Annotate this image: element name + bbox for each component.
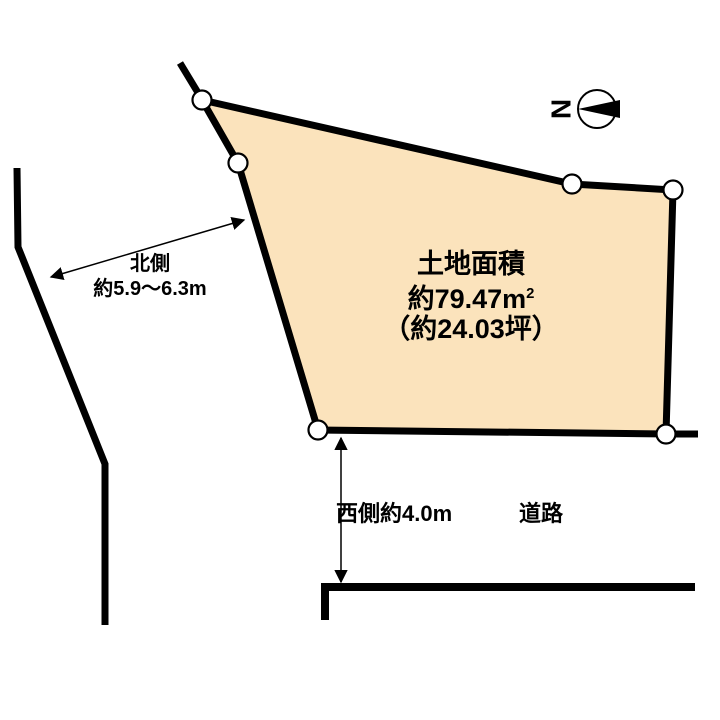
site-plan-diagram: N 北側 約5.9～6.3m 土地面積 約79.47m2 （約24.03坪） 西… bbox=[0, 0, 720, 720]
north-side-name: 北側 bbox=[93, 252, 206, 277]
boundary-point-marker bbox=[309, 421, 328, 440]
north-side-value: 約5.9～6.3m bbox=[93, 277, 206, 302]
road-label: 道路 bbox=[519, 496, 563, 528]
boundary-point-marker bbox=[193, 91, 212, 110]
land-area-title: 土地面積 bbox=[383, 249, 559, 279]
north-letter: N bbox=[546, 99, 577, 119]
land-area-tsubo: （約24.03坪） bbox=[383, 314, 559, 344]
boundary-point-marker bbox=[664, 181, 683, 200]
land-area-sqm: 約79.47m2 bbox=[383, 279, 559, 314]
boundary-point-marker bbox=[229, 154, 248, 173]
road-boundary-line bbox=[325, 587, 695, 620]
squared-superscript: 2 bbox=[526, 286, 534, 302]
site-plan-svg: N bbox=[0, 0, 720, 720]
land-area-label: 土地面積 約79.47m2 （約24.03坪） bbox=[383, 249, 559, 344]
boundary-point-marker bbox=[563, 175, 582, 194]
north-indicator: N bbox=[546, 90, 621, 128]
left-boundary-line bbox=[17, 168, 105, 625]
boundary-point-marker bbox=[657, 425, 676, 444]
north-side-dimension-label: 北側 約5.9～6.3m bbox=[93, 252, 206, 302]
west-side-dimension-label: 西側約4.0m bbox=[336, 496, 452, 528]
